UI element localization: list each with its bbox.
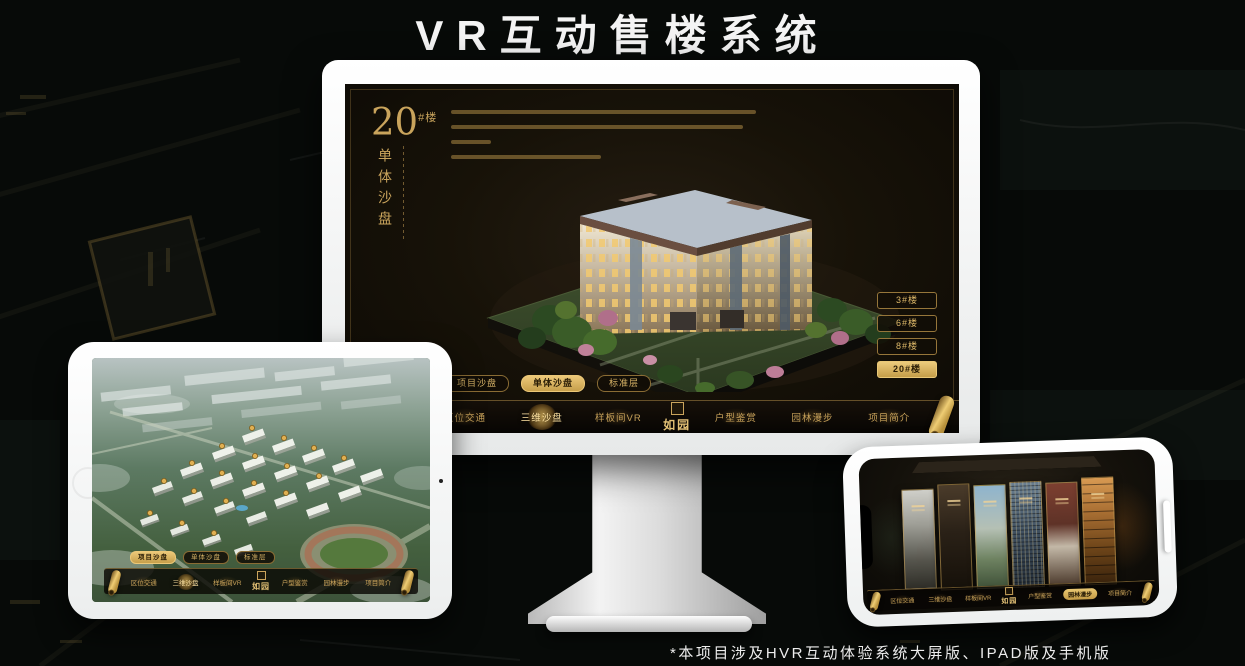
description-line [451, 140, 491, 144]
scroll-menu-icon[interactable] [400, 569, 415, 594]
section-title-vertical: 单体沙盘 [375, 148, 395, 232]
nav-item-3d-sandtable[interactable]: 三维沙盘 [510, 401, 574, 433]
tab-project-sandtable[interactable]: 项目沙盘 [130, 551, 176, 564]
brand-logo[interactable]: 如园 [663, 402, 691, 433]
brand-seal-icon [257, 571, 266, 580]
phone-device: 区位交通 三维沙盘 样板间VR 如园 户型鉴赏 [842, 436, 1178, 627]
ipad-device: 项目沙盘 单体沙盘 标准层 区位交通 三维沙盘 样板间VR [68, 342, 452, 619]
vertical-english-caption [403, 146, 404, 242]
brand-name: 如园 [1001, 595, 1017, 606]
nav-item-unit-gallery[interactable]: 户型鉴赏 [1025, 584, 1056, 605]
building-number-suffix: #楼 [418, 112, 437, 124]
panorama-card-interior[interactable] [937, 483, 973, 590]
ipad-screen: 项目沙盘 单体沙盘 标准层 区位交通 三维沙盘 样板间VR [92, 358, 430, 602]
nav-label: 园林漫步 [792, 410, 834, 424]
nav-item-location[interactable]: 区位交通 [127, 569, 161, 594]
page-title: VR互动售楼系统 [0, 2, 1245, 63]
nav-label: 项目简介 [1108, 587, 1132, 597]
floor-button-3[interactable]: 3#楼 [877, 292, 937, 309]
aerial-masterplan-render [92, 358, 430, 602]
scroll-menu-icon[interactable] [927, 394, 956, 433]
nav-item-location[interactable]: 区位交通 [887, 589, 918, 610]
nav-label: 园林漫步 [1063, 588, 1097, 600]
camera-icon [439, 479, 443, 483]
panorama-card-autumn-wall[interactable] [1045, 482, 1081, 587]
tab-project-sandtable[interactable]: 项目沙盘 [445, 375, 509, 392]
nav-item-unit-gallery[interactable]: 户型鉴赏 [278, 569, 312, 594]
view-tabs: 项目沙盘 单体沙盘 标准层 [445, 375, 651, 392]
nav-label: 户型鉴赏 [715, 410, 757, 424]
brand-name: 如园 [252, 581, 270, 592]
brand-name: 如园 [663, 416, 691, 433]
panorama-card-tower[interactable] [1009, 481, 1045, 588]
ipad-view-tabs: 项目沙盘 单体沙盘 标准层 [130, 551, 275, 564]
nav-label: 样板间VR [965, 592, 992, 602]
panorama-card-shelf[interactable] [1081, 476, 1117, 585]
tab-single-sandtable[interactable]: 单体沙盘 [183, 551, 229, 564]
nav-item-unit-gallery[interactable]: 户型鉴赏 [704, 401, 768, 433]
description-line [451, 125, 743, 129]
nav-label: 三维沙盘 [521, 410, 563, 424]
nav-item-showroom-vr[interactable]: 样板间VR [210, 569, 244, 594]
panorama-card-courtyard[interactable] [901, 489, 936, 590]
nav-item-showroom-vr[interactable]: 样板间VR [586, 401, 650, 433]
nav-item-3d-sandtable[interactable]: 三维沙盘 [169, 569, 203, 594]
phone-side-button [1163, 500, 1172, 552]
nav-label: 园林漫步 [324, 577, 350, 587]
building-number: 20#楼 [371, 100, 437, 140]
nav-label: 样板间VR [595, 410, 642, 424]
nav-item-showroom-vr[interactable]: 样板间VR [963, 587, 994, 608]
scroll-menu-icon[interactable] [107, 569, 122, 594]
nav-label: 样板间VR [213, 577, 242, 587]
brand-seal-icon [671, 402, 684, 415]
tab-single-sandtable[interactable]: 单体沙盘 [521, 375, 585, 392]
panorama-card-garden[interactable] [973, 484, 1009, 589]
nav-label: 三维沙盘 [928, 594, 952, 604]
tab-standard-floor[interactable]: 标准层 [236, 551, 275, 564]
nav-item-garden-walk[interactable]: 园林漫步 [1063, 583, 1098, 604]
nav-item-project-intro[interactable]: 项目简介 [857, 401, 921, 433]
nav-item-project-intro[interactable]: 项目简介 [1105, 582, 1136, 603]
nav-label: 户型鉴赏 [282, 577, 308, 587]
nav-item-garden-walk[interactable]: 园林漫步 [781, 401, 845, 433]
description-line [451, 155, 601, 159]
nav-item-project-intro[interactable]: 项目简介 [361, 569, 395, 594]
floor-button-8[interactable]: 8#楼 [877, 338, 937, 355]
promo-poster: VR互动售楼系统 20#楼 单体沙盘 [0, 0, 1245, 666]
nav-label: 三维沙盘 [173, 577, 199, 587]
floor-button-6[interactable]: 6#楼 [877, 315, 937, 332]
building-number-text: 20 [371, 100, 418, 143]
nav-label: 户型鉴赏 [1028, 590, 1052, 600]
footnote-caption: *本项目涉及HVR互动体验系统大屏版、IPAD版及手机版 [670, 642, 1111, 663]
building-3d-render [480, 160, 910, 392]
nav-item-3d-sandtable[interactable]: 三维沙盘 [925, 588, 956, 609]
floor-selector: 3#楼 6#楼 8#楼 20#楼 [877, 292, 937, 378]
nav-label: 区位交通 [890, 595, 914, 605]
phone-notch [860, 505, 873, 569]
brand-logo[interactable]: 如园 [1001, 586, 1018, 606]
brand-logo[interactable]: 如园 [252, 571, 270, 592]
brand-seal-icon [1005, 586, 1013, 594]
nav-item-garden-walk[interactable]: 园林漫步 [320, 569, 354, 594]
building-title-block: 20#楼 单体沙盘 [371, 100, 437, 232]
nav-label: 项目简介 [365, 577, 391, 587]
description-line [451, 110, 756, 114]
tab-standard-floor[interactable]: 标准层 [597, 375, 651, 392]
ipad-navbar: 区位交通 三维沙盘 样板间VR 如园 户型鉴赏 [104, 568, 418, 594]
scroll-menu-icon[interactable] [869, 591, 881, 611]
phone-screen: 区位交通 三维沙盘 样板间VR 如园 户型鉴赏 [858, 449, 1159, 615]
scroll-menu-icon[interactable] [1141, 581, 1153, 601]
nav-label: 项目简介 [868, 410, 910, 424]
floor-button-20[interactable]: 20#楼 [877, 361, 937, 378]
nav-label: 区位交通 [131, 577, 157, 587]
monitor-base [546, 616, 752, 632]
